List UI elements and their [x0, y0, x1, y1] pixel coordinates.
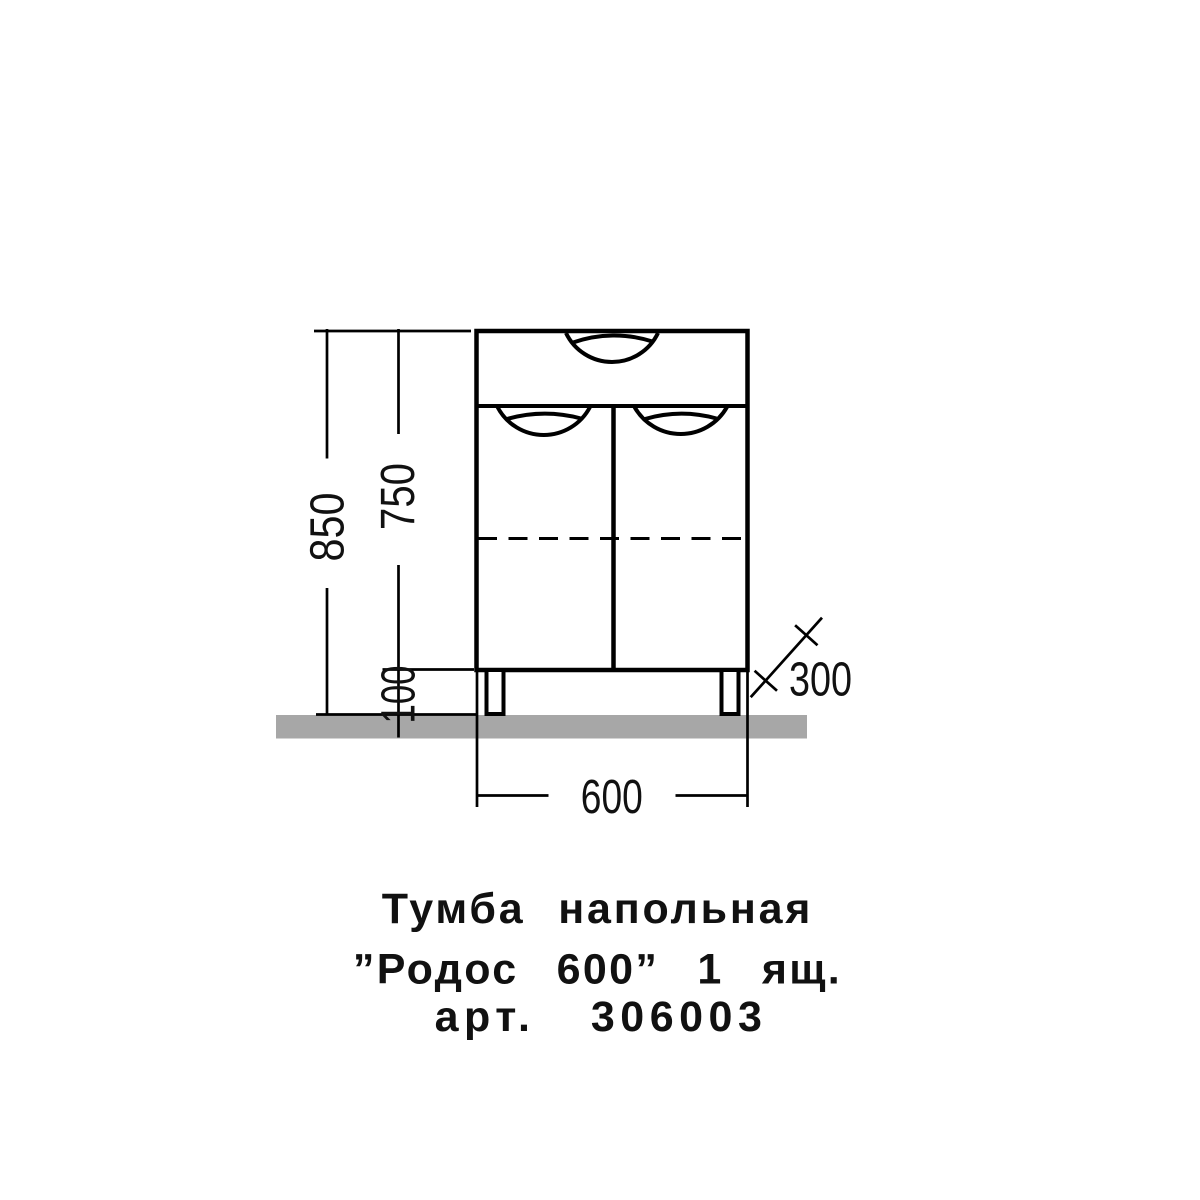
svg-text:100: 100: [373, 666, 426, 724]
svg-text:600: 600: [581, 771, 643, 824]
svg-text:арт. 306003: арт. 306003: [435, 993, 768, 1041]
svg-text:750: 750: [372, 463, 425, 530]
svg-text:Тумба напольная: Тумба напольная: [382, 885, 813, 933]
svg-text:300: 300: [789, 654, 852, 707]
svg-text:”Родос 600” 1 ящ.: ”Родос 600” 1 ящ.: [353, 946, 842, 994]
svg-text:850: 850: [302, 493, 355, 562]
